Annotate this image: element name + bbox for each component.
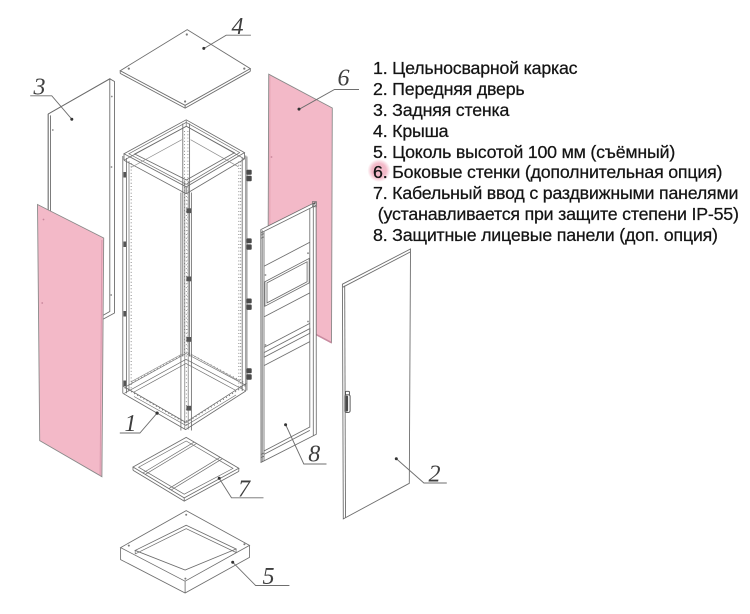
svg-text:6: 6 (338, 66, 350, 92)
svg-text:5: 5 (263, 564, 275, 590)
svg-text:7: 7 (238, 477, 251, 503)
svg-text:3: 3 (33, 75, 46, 101)
svg-text:4: 4 (232, 14, 244, 40)
